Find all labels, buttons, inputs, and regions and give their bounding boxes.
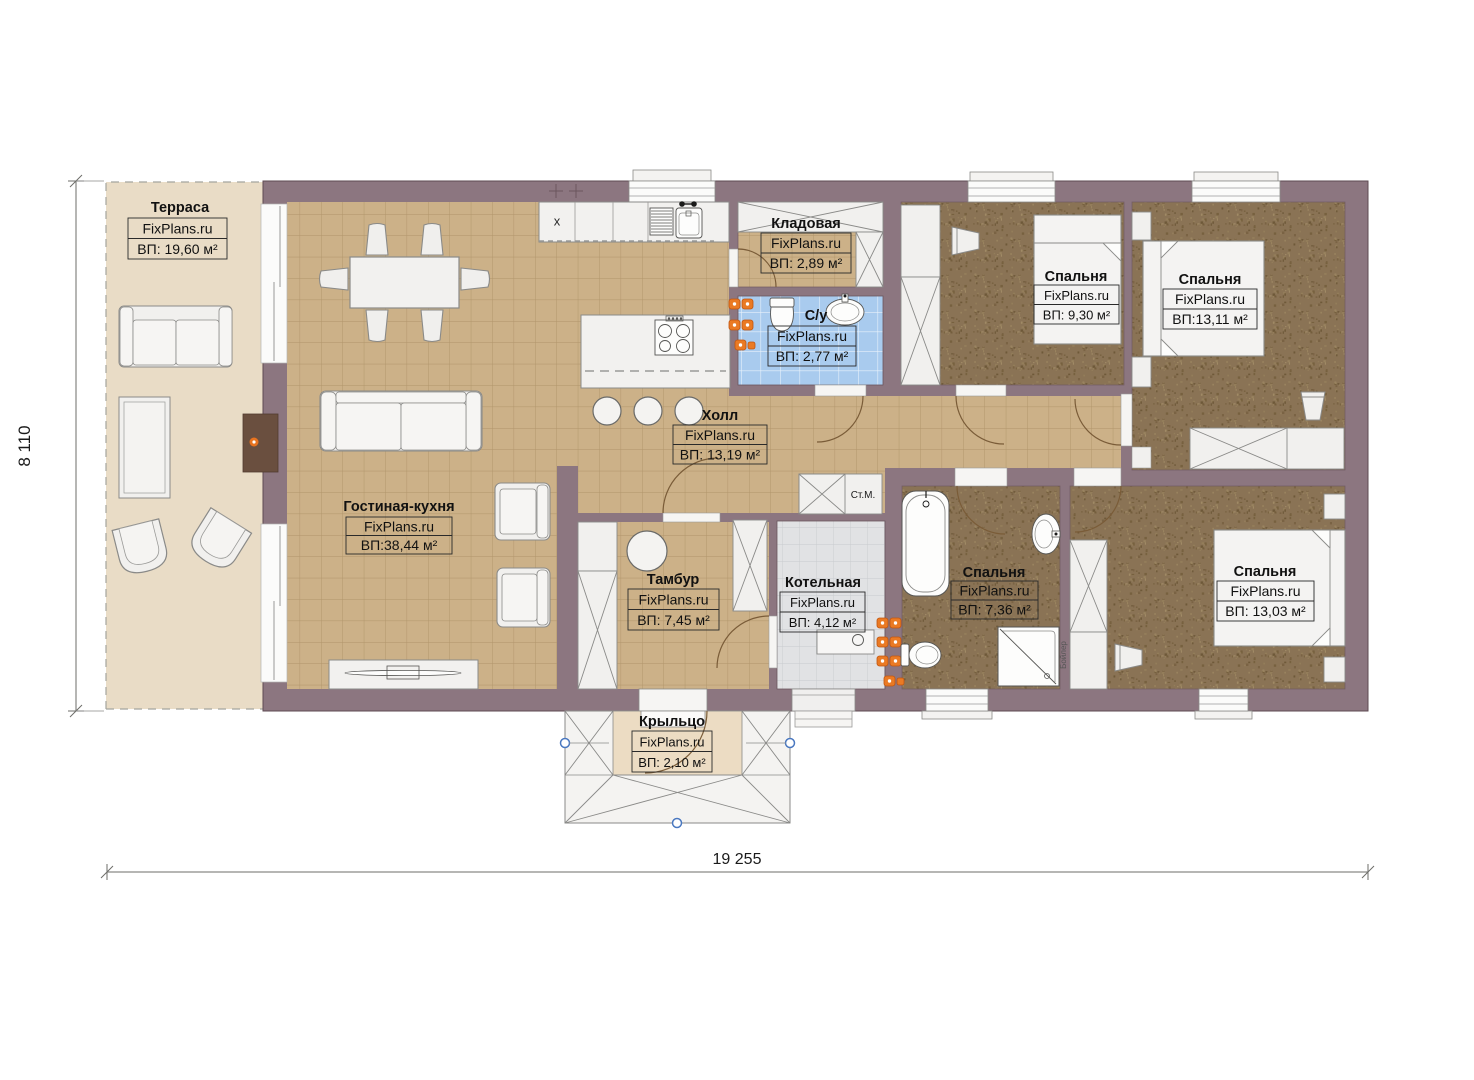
svg-text:Котельная: Котельная (785, 575, 861, 591)
svg-text:Кладовая: Кладовая (771, 216, 840, 232)
svg-text:ВП: 2,10 м²: ВП: 2,10 м² (638, 755, 706, 770)
svg-text:FixPlans.ru: FixPlans.ru (685, 427, 755, 443)
svg-text:ВП: 2,77 м²: ВП: 2,77 м² (776, 348, 849, 364)
svg-text:Спальня: Спальня (963, 565, 1026, 581)
svg-text:ВП: 9,30 м²: ВП: 9,30 м² (1043, 307, 1111, 322)
svg-text:ВП: 13,03 м²: ВП: 13,03 м² (1225, 603, 1306, 619)
svg-text:Тамбур: Тамбур (647, 572, 700, 588)
svg-text:8 110: 8 110 (15, 425, 34, 466)
svg-text:Спальня: Спальня (1179, 272, 1242, 288)
svg-text:FixPlans.ru: FixPlans.ru (790, 595, 855, 610)
svg-text:ВП: 7,36 м²: ВП: 7,36 м² (958, 602, 1031, 618)
svg-text:FixPlans.ru: FixPlans.ru (1175, 291, 1245, 307)
svg-text:ВП: 13,19 м²: ВП: 13,19 м² (680, 446, 761, 462)
svg-text:Бойлер: Бойлер (1059, 641, 1068, 669)
svg-text:x: x (554, 213, 561, 228)
svg-text:FixPlans.ru: FixPlans.ru (638, 591, 708, 607)
svg-text:FixPlans.ru: FixPlans.ru (771, 235, 841, 251)
svg-text:ВП:38,44 м²: ВП:38,44 м² (361, 537, 438, 553)
svg-text:19 255: 19 255 (713, 851, 762, 868)
svg-text:FixPlans.ru: FixPlans.ru (142, 220, 212, 236)
svg-text:Холл: Холл (702, 408, 738, 424)
svg-text:FixPlans.ru: FixPlans.ru (639, 734, 704, 749)
svg-text:ВП: 7,45 м²: ВП: 7,45 м² (637, 612, 710, 628)
svg-text:FixPlans.ru: FixPlans.ru (1230, 583, 1300, 599)
svg-text:FixPlans.ru: FixPlans.ru (959, 583, 1029, 599)
svg-text:Спальня: Спальня (1234, 564, 1297, 580)
svg-text:Терраса: Терраса (151, 200, 210, 216)
svg-text:ВП: 4,12 м²: ВП: 4,12 м² (789, 615, 857, 630)
svg-text:С/у: С/у (805, 308, 828, 324)
svg-text:FixPlans.ru: FixPlans.ru (777, 328, 847, 344)
svg-text:ВП:13,11 м²: ВП:13,11 м² (1172, 311, 1248, 327)
svg-text:FixPlans.ru: FixPlans.ru (364, 518, 434, 534)
svg-text:Гостиная-кухня: Гостиная-кухня (343, 499, 454, 515)
svg-text:Ст.М.: Ст.М. (851, 490, 876, 501)
svg-text:FixPlans.ru: FixPlans.ru (1044, 288, 1109, 303)
svg-text:Крыльцо: Крыльцо (639, 714, 705, 730)
svg-text:Спальня: Спальня (1045, 269, 1108, 285)
svg-text:ВП: 19,60 м²: ВП: 19,60 м² (137, 241, 218, 257)
svg-text:ВП: 2,89 м²: ВП: 2,89 м² (770, 255, 843, 271)
